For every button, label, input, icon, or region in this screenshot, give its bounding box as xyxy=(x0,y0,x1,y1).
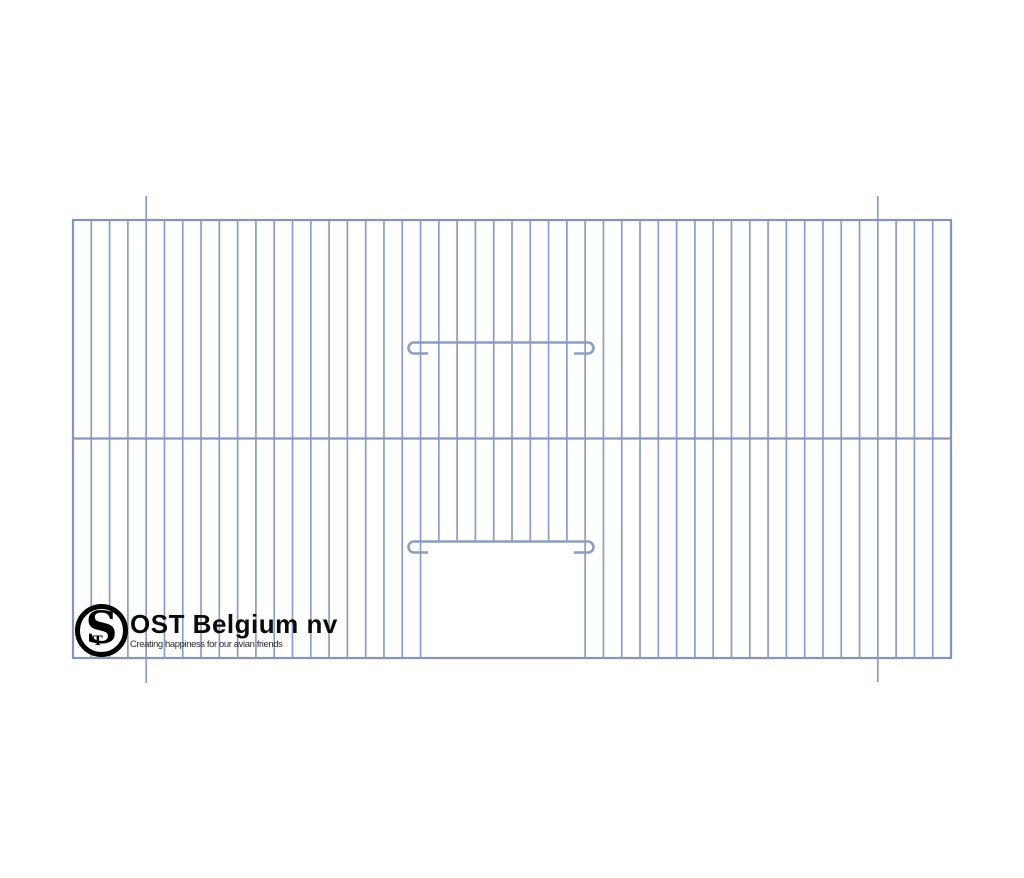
cage-front-drawing xyxy=(0,0,1024,878)
upper-hook-bar xyxy=(409,343,594,354)
monogram-letter-t: T xyxy=(93,635,103,648)
ost-monogram-icon: S T xyxy=(75,604,128,657)
door-hook-bar xyxy=(409,542,594,553)
page-canvas: S T OST Belgium nv Creating happiness fo… xyxy=(0,0,1024,878)
logo-text: OST Belgium nv Creating happiness for ou… xyxy=(130,604,338,650)
brand-tagline: Creating happiness for our avian friends xyxy=(130,640,338,650)
logo: S T OST Belgium nv Creating happiness fo… xyxy=(75,604,338,657)
brand-name: OST Belgium nv xyxy=(130,611,338,637)
